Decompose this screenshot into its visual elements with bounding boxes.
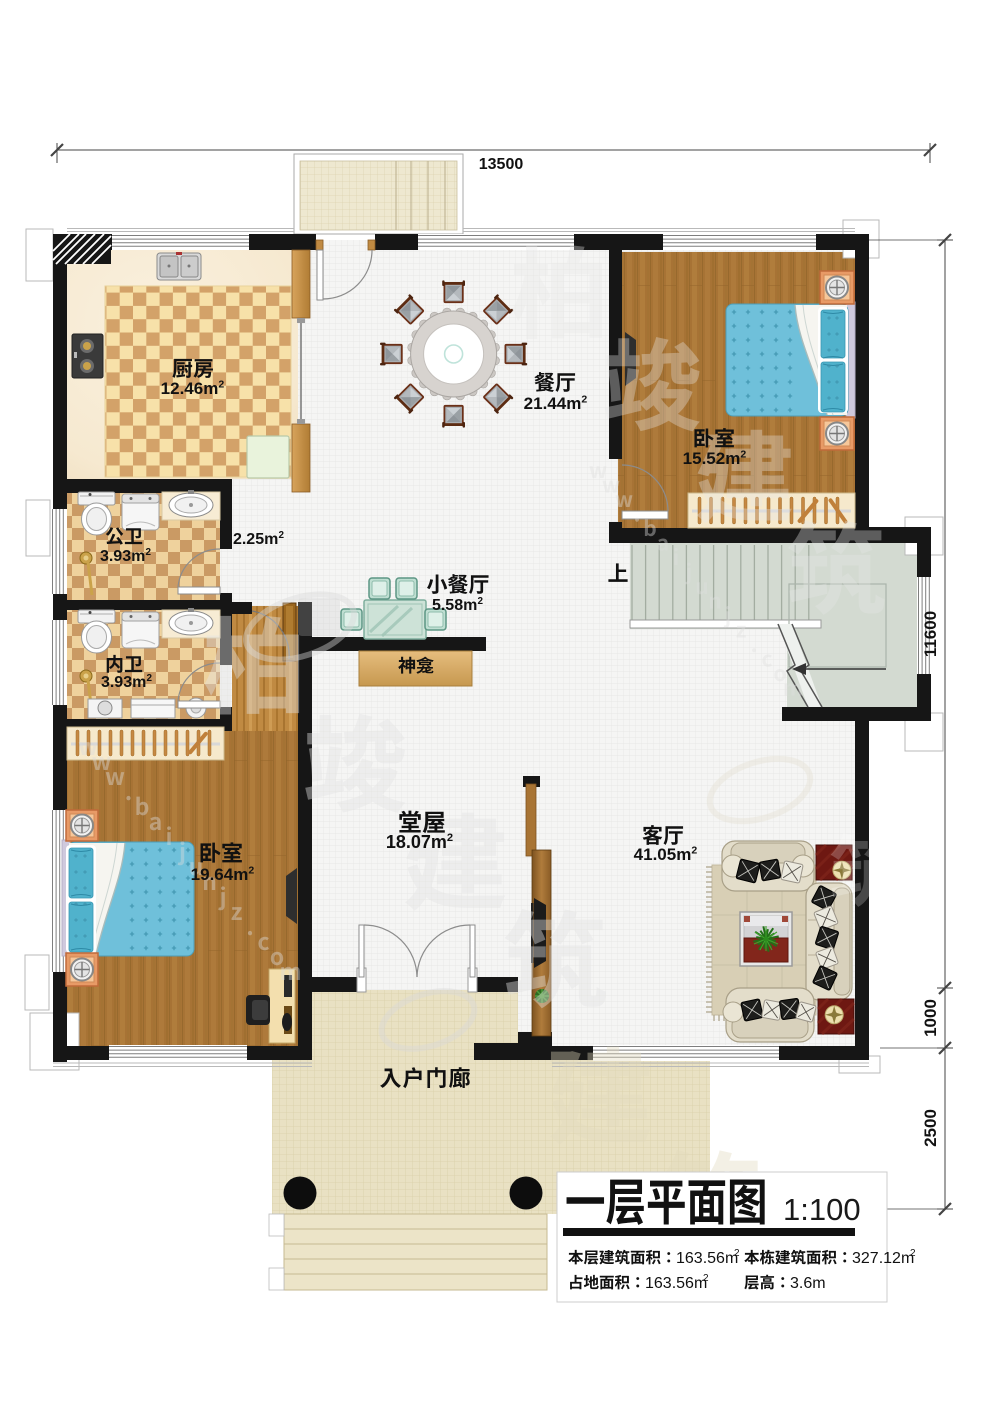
- svg-text:12.46m: 12.46m: [161, 379, 219, 398]
- svg-text:3.93m: 3.93m: [100, 548, 145, 565]
- svg-text:2: 2: [248, 865, 254, 877]
- svg-text:327.12m: 327.12m: [852, 1250, 914, 1267]
- svg-text:1:100: 1:100: [783, 1192, 861, 1227]
- svg-text:41.05m: 41.05m: [634, 845, 692, 864]
- svg-text:1000: 1000: [921, 999, 940, 1037]
- svg-text:163.56m: 163.56m: [676, 1250, 738, 1267]
- svg-text:2: 2: [581, 394, 587, 406]
- svg-text:2: 2: [910, 1248, 916, 1259]
- svg-text:2: 2: [145, 547, 151, 558]
- svg-text:5.58m: 5.58m: [432, 597, 477, 614]
- svg-text:19.64m: 19.64m: [191, 865, 249, 884]
- svg-text:2: 2: [218, 379, 224, 391]
- svg-text:2: 2: [477, 596, 483, 607]
- svg-text:11600: 11600: [921, 611, 940, 657]
- svg-text:18.07m: 18.07m: [386, 832, 447, 852]
- svg-text:2: 2: [447, 832, 453, 844]
- svg-text:2: 2: [734, 1248, 740, 1259]
- svg-text:3.93m: 3.93m: [101, 674, 146, 691]
- svg-text:15.52m: 15.52m: [683, 449, 741, 468]
- svg-text:2500: 2500: [921, 1109, 940, 1147]
- svg-text:3.6m: 3.6m: [790, 1275, 826, 1292]
- svg-text:13500: 13500: [479, 156, 524, 173]
- svg-text:2: 2: [703, 1273, 709, 1284]
- svg-text:21.44m: 21.44m: [524, 394, 582, 413]
- svg-text:2.25m: 2.25m: [233, 531, 278, 548]
- svg-text:163.56m: 163.56m: [645, 1275, 707, 1292]
- svg-text:2: 2: [691, 845, 697, 857]
- svg-text:2: 2: [278, 530, 284, 541]
- svg-text:2: 2: [146, 673, 152, 684]
- svg-text:2: 2: [740, 449, 746, 461]
